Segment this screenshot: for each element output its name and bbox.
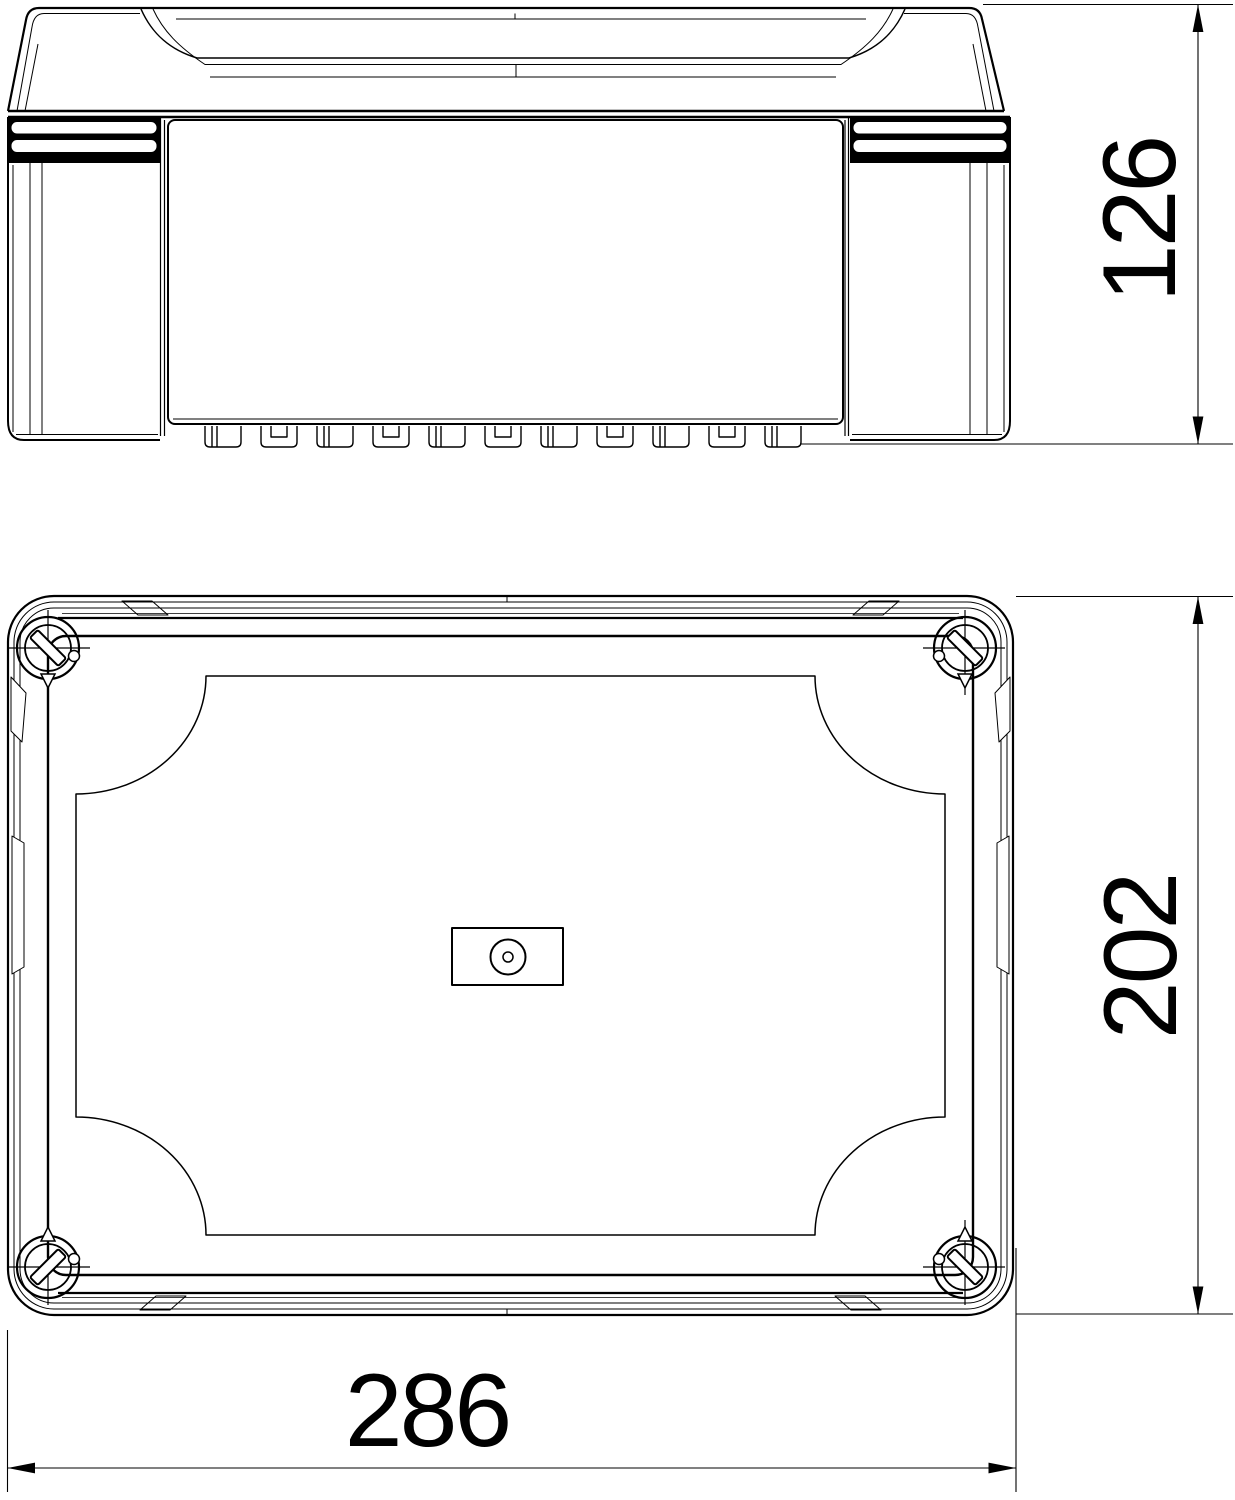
edge-notches (11, 601, 1010, 1310)
cap-divider-left (161, 118, 165, 436)
membrane-dot (503, 952, 513, 962)
foot-tab (597, 426, 633, 447)
foot-tab (373, 426, 409, 447)
lid-inner-edge-left (17, 14, 140, 112)
foot-tab (541, 426, 577, 447)
front-elevation-view (8, 8, 1010, 447)
foot-tab (317, 426, 353, 447)
cap-divider-right (845, 118, 849, 436)
mounting-feet (205, 426, 801, 447)
label-plate (452, 928, 563, 985)
technical-drawing: 126 202 286 (0, 0, 1235, 1500)
left-end-cap (8, 118, 165, 436)
arrowhead-down-icon (1193, 1287, 1204, 1315)
arrowhead-up-icon (1193, 5, 1204, 33)
side-groove-left (12, 836, 24, 974)
cover-outline-inner2 (20, 608, 1001, 1303)
lid-second-edge-right (973, 44, 986, 111)
arrowhead-up-icon (1193, 597, 1204, 625)
lid-inner-edge-right (904, 14, 994, 112)
foot-tab (205, 426, 241, 447)
dimension-value-height: 126 (1082, 138, 1198, 303)
foot-tab (261, 426, 297, 447)
side-wedge-left (11, 677, 26, 742)
plan-view (8, 596, 1013, 1315)
foot-tab (429, 426, 465, 447)
body-right-side (850, 117, 1010, 440)
dimension-value-width: 286 (345, 1353, 510, 1469)
arrowhead-left-icon (8, 1463, 36, 1474)
foot-tab (485, 426, 521, 447)
arrowhead-right-icon (989, 1463, 1017, 1474)
dimension-value-depth: 202 (1083, 875, 1199, 1040)
foot-tab (765, 426, 801, 447)
cover-outline (8, 596, 1013, 1315)
cover-panel (76, 676, 945, 1235)
dimension-width-286: 286 (8, 1248, 1017, 1492)
membrane-circle (491, 940, 526, 975)
handle-recess (141, 9, 905, 77)
foot-tab (709, 426, 745, 447)
cover-wall-edge (48, 636, 973, 1275)
lid-body-separator (8, 111, 1010, 117)
body-face (168, 120, 843, 424)
arrowhead-down-icon (1193, 417, 1204, 445)
side-wedge-right (995, 677, 1010, 742)
cover-outline-inner1 (14, 602, 1007, 1309)
corner-screw-top-right (923, 610, 1005, 695)
body-left-side (8, 117, 160, 440)
dimension-height-126: 126 (800, 5, 1233, 445)
side-groove-right (997, 836, 1009, 974)
right-end-cap (845, 118, 1010, 436)
drawing-canvas: 126 202 286 (0, 0, 1235, 1500)
dimension-depth-202: 202 (1016, 597, 1233, 1315)
mold-center-mark (515, 14, 516, 78)
lid-outline (8, 8, 1004, 111)
foot-tab (653, 426, 689, 447)
